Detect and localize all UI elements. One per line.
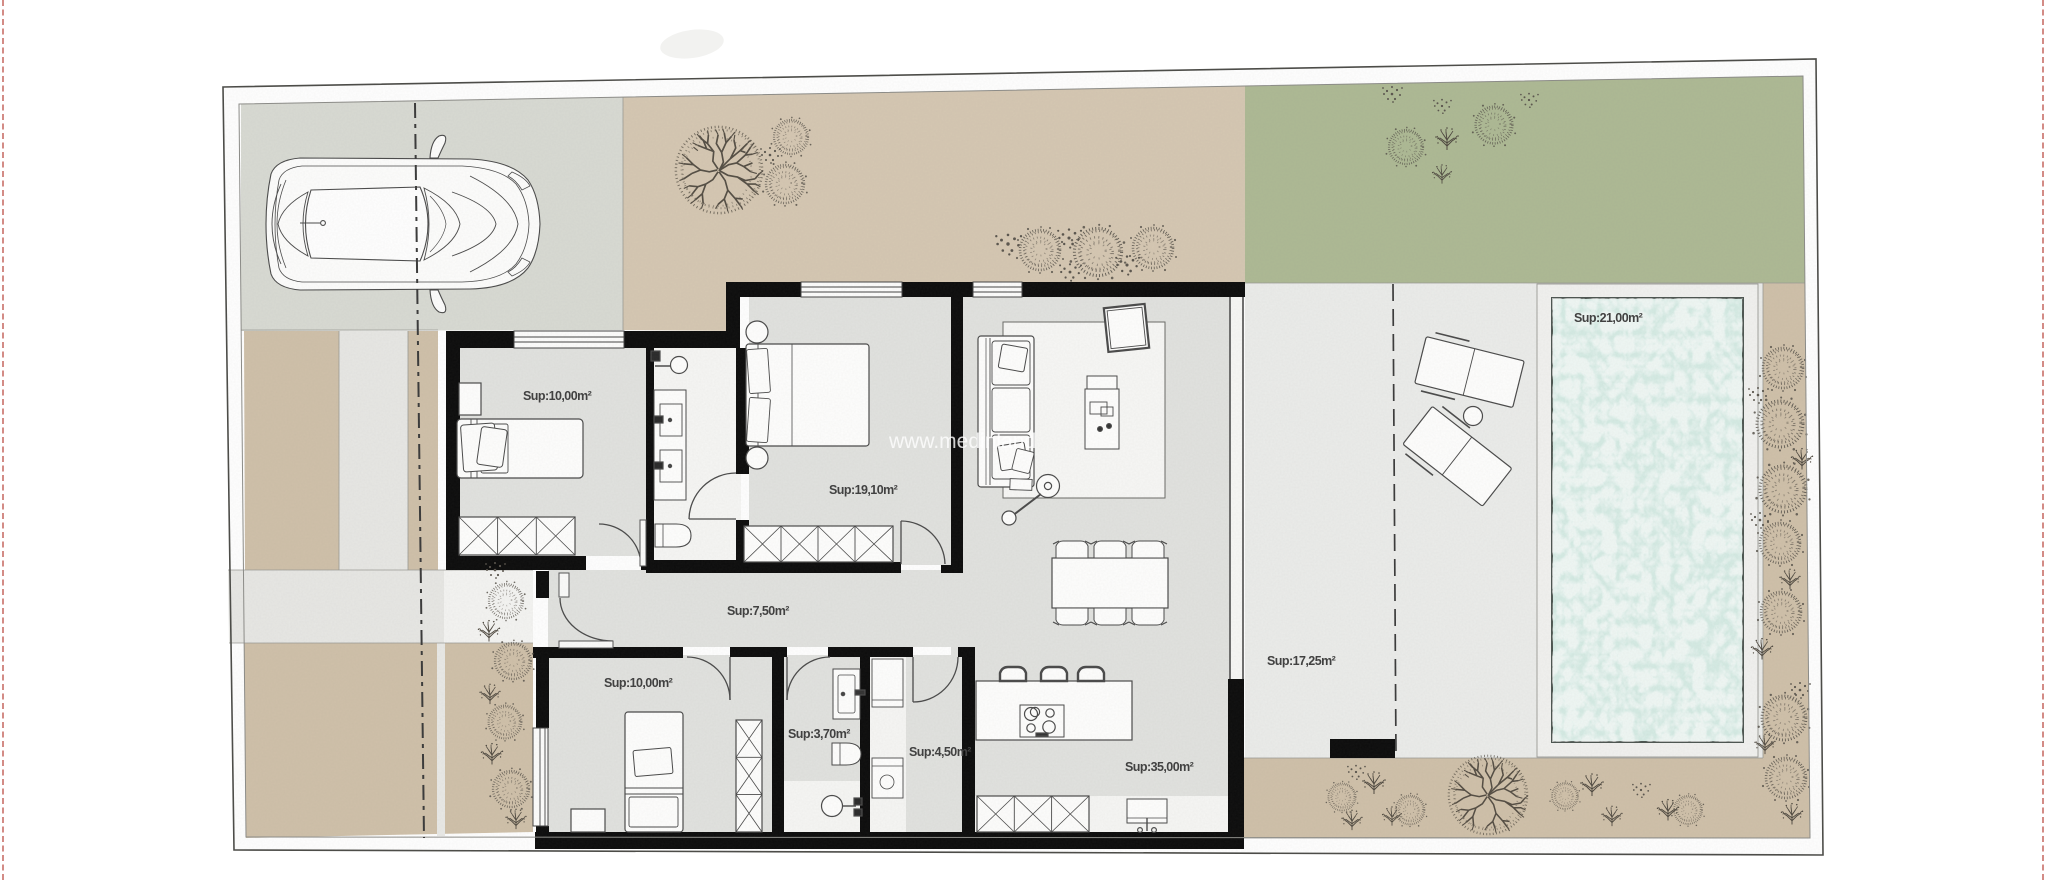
svg-text:www.medinland: www.medinland [888,430,1036,453]
